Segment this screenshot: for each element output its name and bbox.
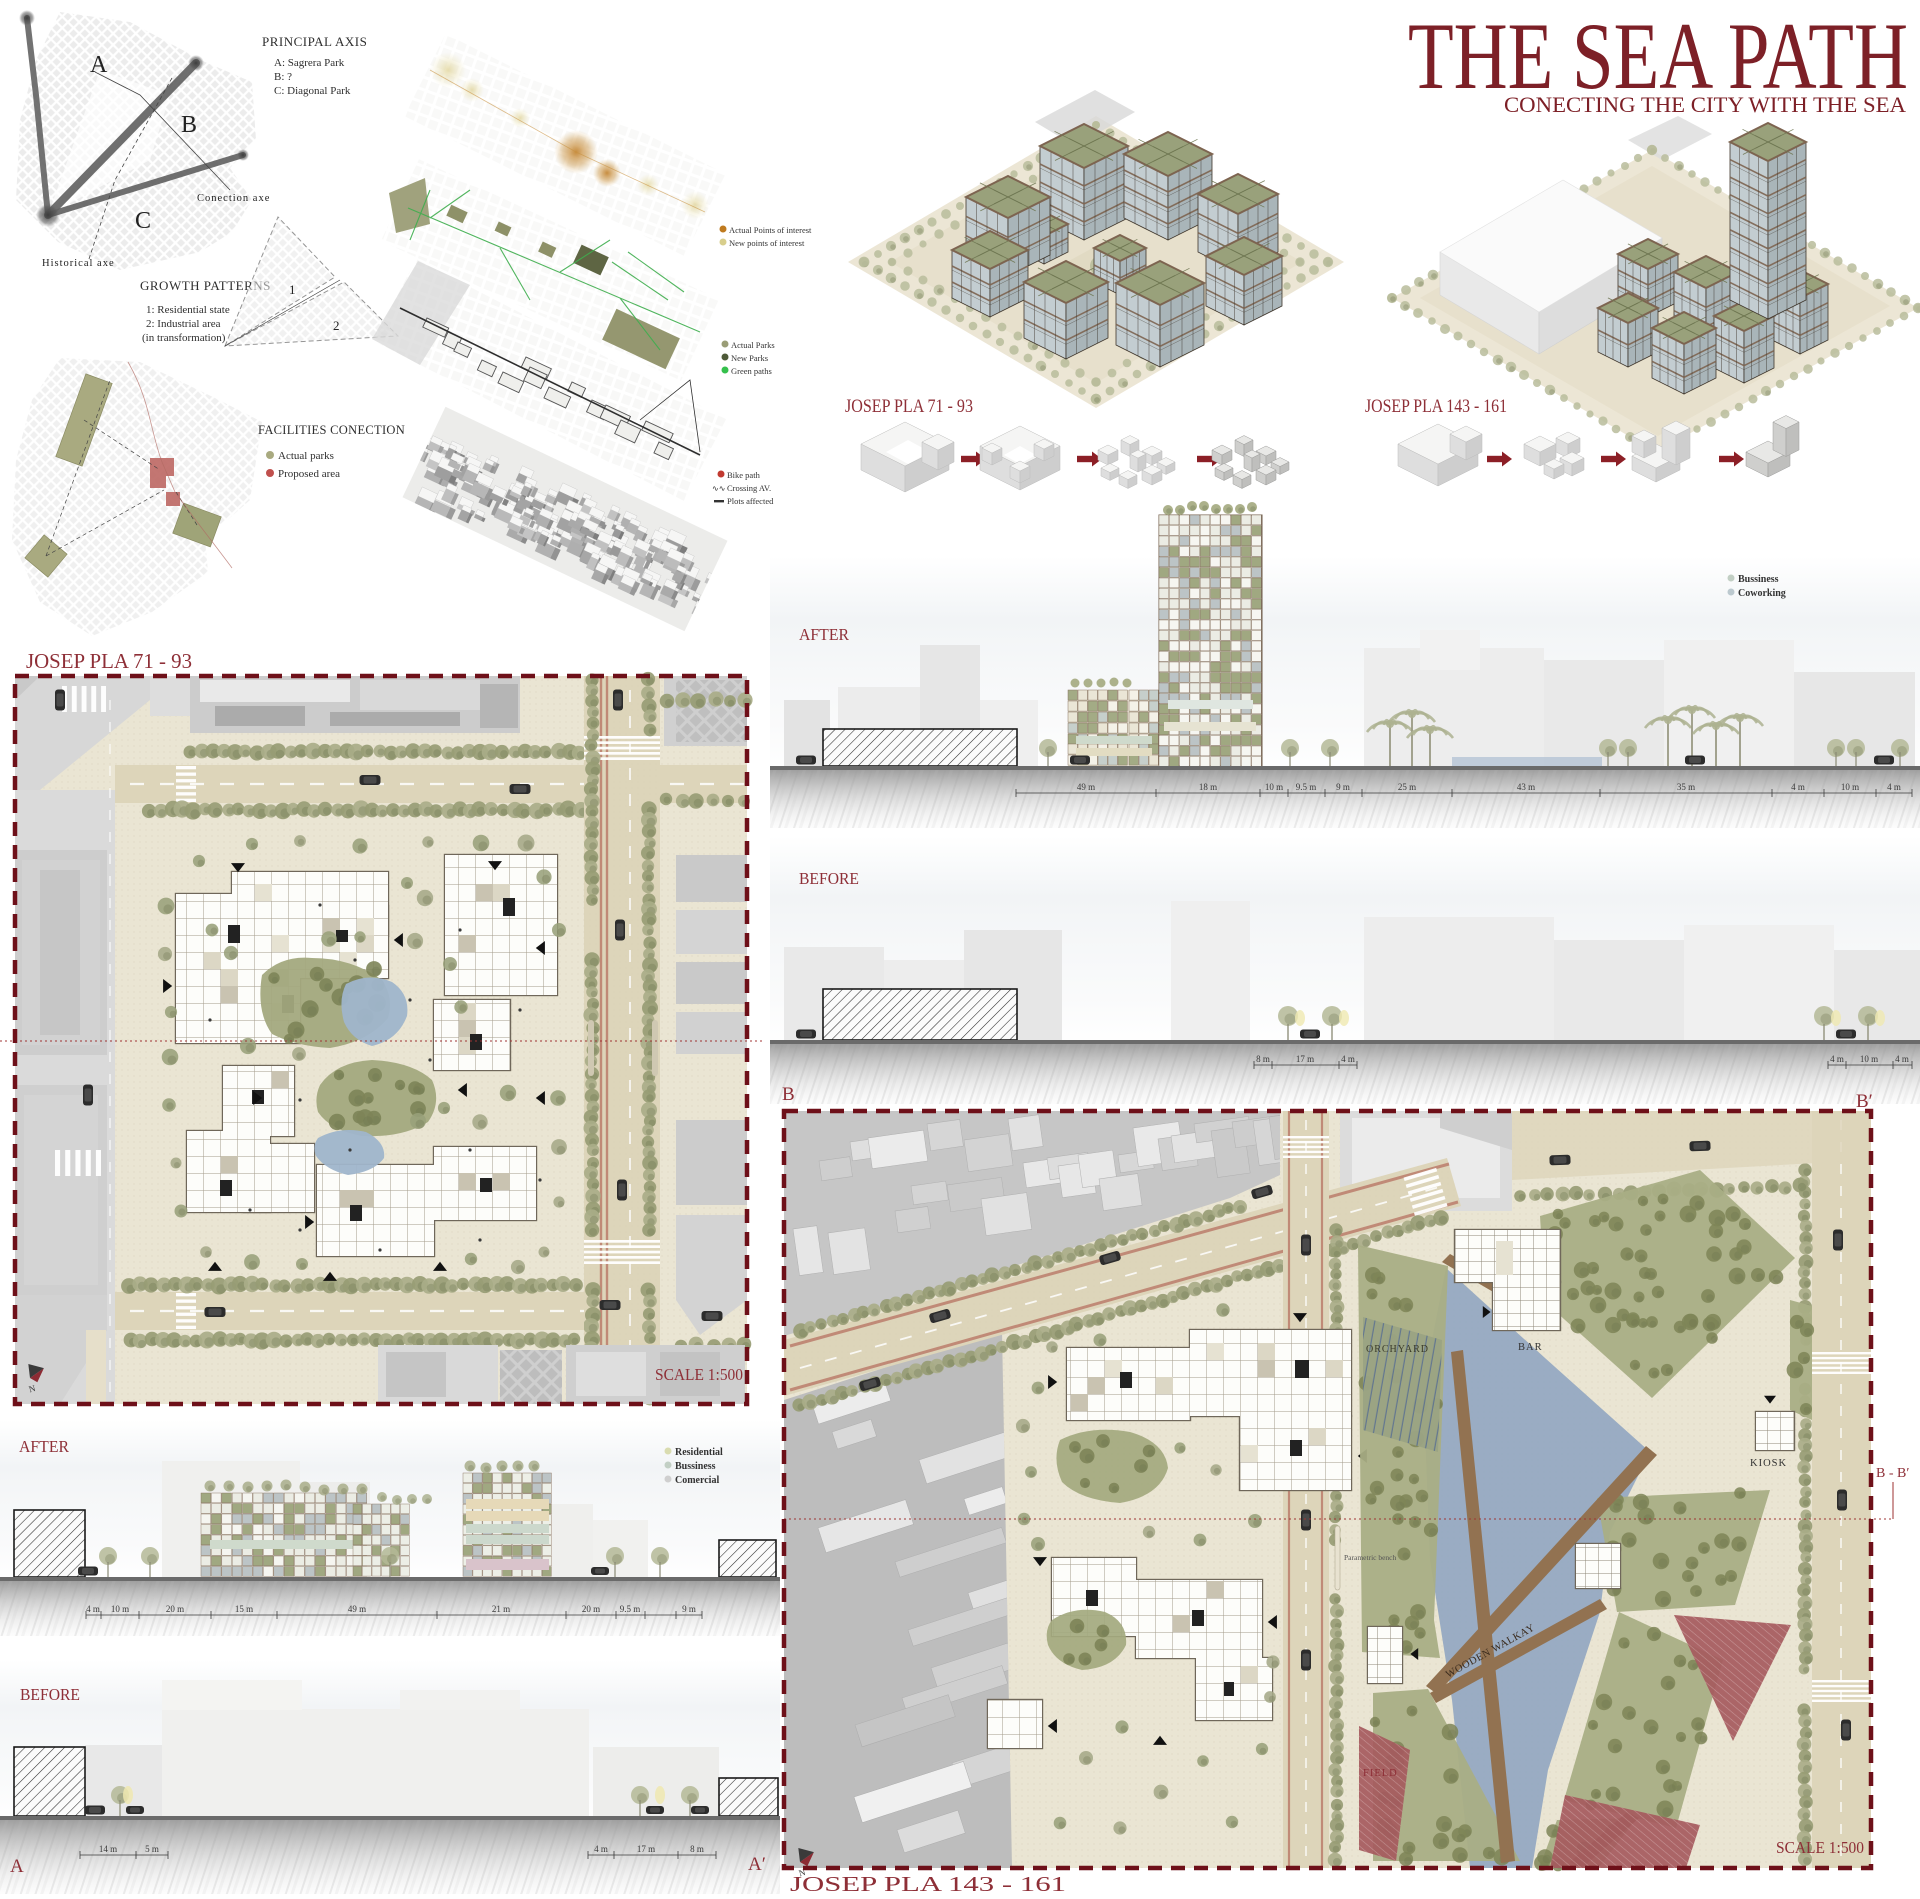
svg-text:Actual parks: Actual parks bbox=[278, 450, 334, 462]
svg-text:Bussiness: Bussiness bbox=[1738, 574, 1779, 585]
svg-text:Crossing AV.: Crossing AV. bbox=[727, 483, 771, 493]
svg-text:4 m: 4 m bbox=[1895, 1054, 1909, 1064]
svg-text:10 m: 10 m bbox=[111, 1604, 129, 1614]
svg-text:A: A bbox=[90, 52, 108, 78]
svg-text:Coworking: Coworking bbox=[1738, 588, 1786, 599]
svg-text:Parametric bench: Parametric bench bbox=[1344, 1553, 1397, 1562]
svg-text:18 m: 18 m bbox=[1199, 782, 1217, 792]
svg-text:New points of interest: New points of interest bbox=[729, 238, 805, 248]
svg-text:C: C bbox=[135, 208, 151, 234]
svg-text:9 m: 9 m bbox=[682, 1604, 696, 1614]
svg-text:14 m: 14 m bbox=[99, 1844, 117, 1854]
svg-text:5 m: 5 m bbox=[145, 1844, 159, 1854]
svg-text:PRINCIPAL AXIS: PRINCIPAL AXIS bbox=[262, 34, 367, 49]
svg-text:10 m: 10 m bbox=[1265, 782, 1283, 792]
svg-text:43 m: 43 m bbox=[1517, 782, 1535, 792]
svg-text:JOSEP PLA 71 - 93: JOSEP PLA 71 - 93 bbox=[26, 649, 192, 673]
svg-text:17 m: 17 m bbox=[1296, 1054, 1314, 1064]
svg-text:21 m: 21 m bbox=[492, 1604, 510, 1614]
svg-text:Actual Points of interest: Actual Points of interest bbox=[729, 225, 812, 235]
svg-text:Actual Parks: Actual Parks bbox=[731, 340, 775, 350]
svg-text:BEFORE: BEFORE bbox=[799, 869, 859, 888]
svg-text:KIOSK: KIOSK bbox=[1750, 1458, 1787, 1469]
svg-text:Plots affected: Plots affected bbox=[727, 496, 774, 506]
svg-text:17 m: 17 m bbox=[637, 1844, 655, 1854]
svg-text:2: 2 bbox=[333, 318, 340, 333]
svg-text:Conection axe: Conection axe bbox=[197, 193, 270, 204]
svg-text:9.5 m: 9.5 m bbox=[1296, 782, 1317, 792]
svg-text:35 m: 35 m bbox=[1677, 782, 1695, 792]
svg-text:1: 1 bbox=[289, 282, 296, 297]
svg-text:JOSEP PLA 71 - 93: JOSEP PLA 71 - 93 bbox=[845, 396, 973, 417]
svg-text:ORCHYARD: ORCHYARD bbox=[1366, 1344, 1429, 1355]
svg-text:Historical axe: Historical axe bbox=[42, 258, 115, 269]
svg-text:Green paths: Green paths bbox=[731, 366, 772, 376]
svg-text:4 m: 4 m bbox=[1830, 1054, 1844, 1064]
svg-text:A: A bbox=[10, 1856, 24, 1877]
svg-text:C: Diagonal Park: C: Diagonal Park bbox=[274, 85, 351, 97]
svg-text:4 m: 4 m bbox=[1887, 782, 1901, 792]
svg-text:2: Industrial area: 2: Industrial area bbox=[146, 318, 221, 330]
svg-text:9 m: 9 m bbox=[1336, 782, 1350, 792]
svg-text:4 m: 4 m bbox=[86, 1604, 100, 1614]
svg-text:9.5 m: 9.5 m bbox=[620, 1604, 641, 1614]
svg-text:15 m: 15 m bbox=[235, 1604, 253, 1614]
svg-text:B: ?: B: ? bbox=[274, 71, 292, 83]
svg-text:10 m: 10 m bbox=[1841, 782, 1859, 792]
svg-text:Proposed area: Proposed area bbox=[278, 468, 340, 480]
svg-text:BAR: BAR bbox=[1518, 1342, 1543, 1353]
svg-text:FIELD: FIELD bbox=[1363, 1768, 1398, 1779]
svg-text:Comercial: Comercial bbox=[675, 1475, 719, 1486]
svg-text:SCALE 1:500: SCALE 1:500 bbox=[655, 1365, 743, 1384]
svg-text:∿∿: ∿∿ bbox=[712, 484, 725, 493]
svg-text:A: Sagrera Park: A: Sagrera Park bbox=[274, 57, 345, 69]
svg-text:25 m: 25 m bbox=[1398, 782, 1416, 792]
svg-text:Bussiness: Bussiness bbox=[675, 1461, 716, 1472]
svg-text:4 m: 4 m bbox=[1341, 1054, 1355, 1064]
svg-text:BEFORE: BEFORE bbox=[20, 1685, 80, 1704]
svg-text:(in transformation): (in transformation) bbox=[142, 332, 226, 344]
svg-text:CONECTING THE CITY WITH THE SE: CONECTING THE CITY WITH THE SEA bbox=[1504, 92, 1906, 117]
svg-text:Residential: Residential bbox=[675, 1447, 723, 1458]
svg-text:AFTER: AFTER bbox=[19, 1437, 70, 1456]
svg-text:AFTER: AFTER bbox=[799, 625, 850, 644]
svg-text:B: B bbox=[782, 1084, 795, 1105]
svg-text:SCALE 1:500: SCALE 1:500 bbox=[1776, 1838, 1864, 1857]
svg-text:8 m: 8 m bbox=[690, 1844, 704, 1854]
svg-text:20 m: 20 m bbox=[582, 1604, 600, 1614]
svg-text:4 m: 4 m bbox=[1791, 782, 1805, 792]
svg-text:B - B′: B - B′ bbox=[1876, 1466, 1909, 1481]
svg-text:4 m: 4 m bbox=[594, 1844, 608, 1854]
svg-text:10 m: 10 m bbox=[1860, 1054, 1878, 1064]
svg-text:New Parks: New Parks bbox=[731, 353, 768, 363]
svg-text:49 m: 49 m bbox=[348, 1604, 366, 1614]
svg-text:B: B bbox=[181, 112, 197, 138]
svg-text:1: Residential state: 1: Residential state bbox=[146, 304, 230, 316]
svg-text:A′: A′ bbox=[748, 1854, 766, 1875]
svg-text:FACILITIES CONECTION: FACILITIES CONECTION bbox=[258, 423, 405, 437]
svg-text:JOSEP PLA 143 - 161: JOSEP PLA 143 - 161 bbox=[790, 1872, 1066, 1894]
svg-text:JOSEP PLA 143 - 161: JOSEP PLA 143 - 161 bbox=[1365, 396, 1507, 417]
svg-text:20 m: 20 m bbox=[166, 1604, 184, 1614]
svg-text:Bike path: Bike path bbox=[727, 470, 761, 480]
svg-text:8 m: 8 m bbox=[1256, 1054, 1270, 1064]
svg-text:49 m: 49 m bbox=[1077, 782, 1095, 792]
